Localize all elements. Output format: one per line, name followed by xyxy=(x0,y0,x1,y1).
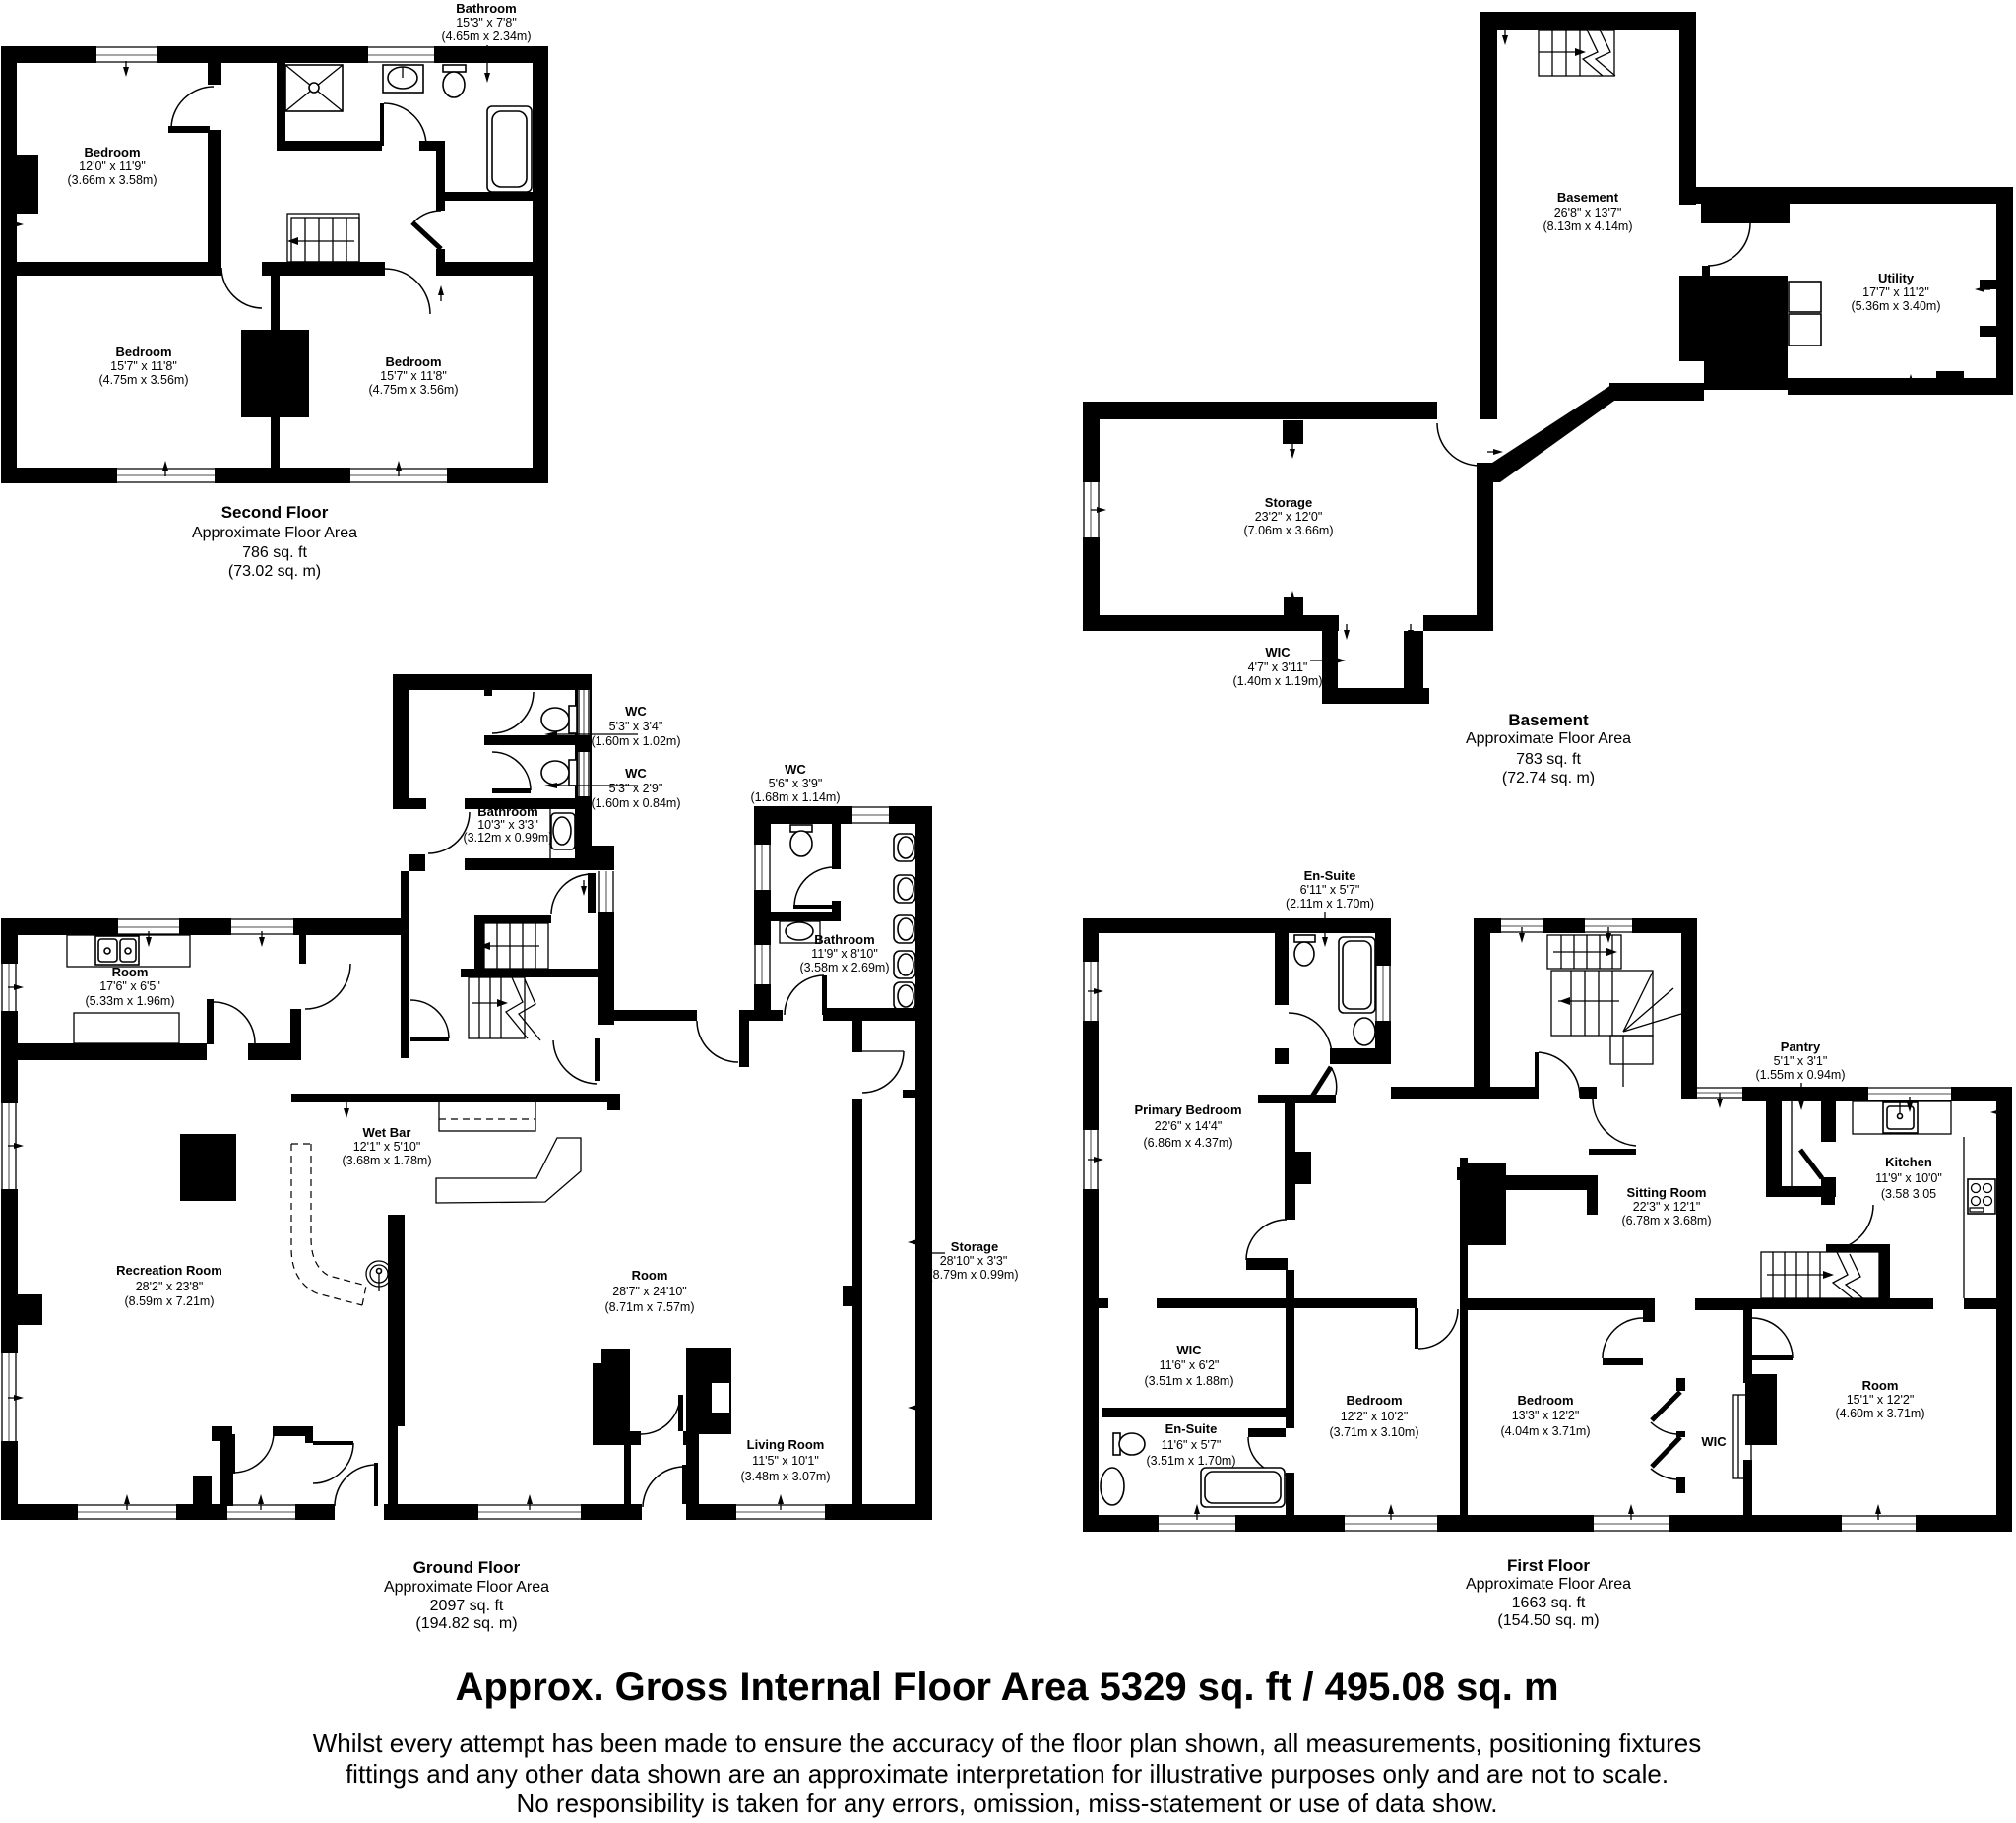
svg-text:(5.36m x 3.40m): (5.36m x 3.40m) xyxy=(1851,299,1940,313)
svg-text:15'7" x 11'8": 15'7" x 11'8" xyxy=(380,369,447,383)
svg-text:(5.33m x 1.96m): (5.33m x 1.96m) xyxy=(85,994,174,1008)
svg-text:5'3" x 3'4": 5'3" x 3'4" xyxy=(609,720,663,733)
svg-text:Room: Room xyxy=(1862,1378,1899,1393)
svg-text:Approximate Floor Area: Approximate Floor Area xyxy=(1466,1576,1631,1593)
svg-text:(73.02 sq. m): (73.02 sq. m) xyxy=(228,563,321,580)
svg-text:Whilst every attempt has been: Whilst every attempt has been made to en… xyxy=(313,1729,1702,1758)
svg-text:23'2" x 12'0": 23'2" x 12'0" xyxy=(1255,510,1323,524)
svg-text:26'8" x 13'7": 26'8" x 13'7" xyxy=(1554,206,1622,220)
svg-text:6'11" x 5'7": 6'11" x 5'7" xyxy=(1300,883,1360,897)
svg-text:11'9" x 10'0": 11'9" x 10'0" xyxy=(1875,1171,1942,1185)
svg-text:WC: WC xyxy=(625,766,647,781)
svg-text:(7.06m x 3.66m): (7.06m x 3.66m) xyxy=(1243,524,1333,537)
svg-text:28'7" x 24'10": 28'7" x 24'10" xyxy=(612,1285,687,1298)
svg-text:En-Suite: En-Suite xyxy=(1165,1421,1218,1436)
svg-text:11'6" x 6'2": 11'6" x 6'2" xyxy=(1160,1358,1220,1372)
svg-text:1663 sq. ft: 1663 sq. ft xyxy=(1512,1595,1586,1611)
svg-text:Second Floor: Second Floor xyxy=(221,503,329,522)
svg-text:(2.11m x 1.70m): (2.11m x 1.70m) xyxy=(1286,897,1374,911)
svg-text:22'3" x 12'1": 22'3" x 12'1" xyxy=(1633,1200,1701,1214)
svg-text:(8.71m x 7.57m): (8.71m x 7.57m) xyxy=(604,1300,694,1314)
svg-text:(1.40m x 1.19m): (1.40m x 1.19m) xyxy=(1232,674,1322,688)
svg-text:11'9" x 8'10": 11'9" x 8'10" xyxy=(811,947,878,961)
svg-text:Pantry: Pantry xyxy=(1781,1039,1821,1054)
svg-text:WC: WC xyxy=(625,704,647,719)
svg-text:Bedroom: Bedroom xyxy=(1517,1393,1573,1408)
svg-text:Primary Bedroom: Primary Bedroom xyxy=(1134,1102,1241,1117)
svg-text:17'7" x 11'2": 17'7" x 11'2" xyxy=(1862,285,1929,299)
svg-text:(3.12m x 0.99m): (3.12m x 0.99m) xyxy=(463,831,552,845)
svg-text:(4.60m x 3.71m): (4.60m x 3.71m) xyxy=(1835,1407,1924,1420)
svg-text:(3.68m x 1.78m): (3.68m x 1.78m) xyxy=(342,1154,431,1167)
svg-text:fittings and any other data sh: fittings and any other data shown are an… xyxy=(346,1759,1669,1789)
svg-text:Sitting Room: Sitting Room xyxy=(1627,1185,1707,1200)
svg-text:(3.71m x 3.10m): (3.71m x 3.10m) xyxy=(1329,1425,1418,1439)
svg-text:(3.58m x 2.69m): (3.58m x 2.69m) xyxy=(799,961,889,974)
svg-text:5'6" x 3'9": 5'6" x 3'9" xyxy=(769,777,823,790)
svg-text:(8.13m x 4.14m): (8.13m x 4.14m) xyxy=(1543,220,1632,233)
svg-text:(72.74 sq. m): (72.74 sq. m) xyxy=(1502,770,1595,786)
svg-text:Bedroom: Bedroom xyxy=(84,145,140,159)
svg-text:15'3" x 7'8": 15'3" x 7'8" xyxy=(456,16,517,30)
svg-text:12'2" x 10'2": 12'2" x 10'2" xyxy=(1341,1410,1409,1423)
svg-text:(3.51m x 1.70m): (3.51m x 1.70m) xyxy=(1146,1454,1235,1468)
svg-text:(3.51m x 1.88m): (3.51m x 1.88m) xyxy=(1144,1374,1233,1388)
svg-text:Utility: Utility xyxy=(1878,271,1915,285)
svg-text:(4.75m x 3.56m): (4.75m x 3.56m) xyxy=(98,373,188,387)
svg-text:12'1" x 5'10": 12'1" x 5'10" xyxy=(353,1140,421,1154)
svg-text:Wet Bar: Wet Bar xyxy=(363,1125,411,1140)
svg-text:17'6" x 6'5": 17'6" x 6'5" xyxy=(99,979,160,993)
svg-text:11'5" x 10'1": 11'5" x 10'1" xyxy=(752,1454,819,1468)
svg-text:4'7" x 3'11": 4'7" x 3'11" xyxy=(1248,660,1308,674)
svg-text:WC: WC xyxy=(785,762,806,777)
svg-text:(8.59m x 7.21m): (8.59m x 7.21m) xyxy=(124,1294,214,1308)
svg-text:22'6" x 14'4": 22'6" x 14'4" xyxy=(1155,1119,1223,1133)
svg-text:783 sq. ft: 783 sq. ft xyxy=(1516,751,1581,768)
svg-text:Basement: Basement xyxy=(1508,711,1589,729)
svg-text:Storage: Storage xyxy=(1265,495,1312,510)
svg-text:12'0" x 11'9": 12'0" x 11'9" xyxy=(79,159,146,173)
svg-text:Approximate Floor Area: Approximate Floor Area xyxy=(384,1579,549,1596)
svg-text:Living Room: Living Room xyxy=(747,1437,825,1452)
svg-text:(3.58 3.05: (3.58 3.05 xyxy=(1881,1187,1936,1201)
svg-text:No responsibility is taken for: No responsibility is taken for any error… xyxy=(516,1789,1497,1818)
svg-text:Bathroom: Bathroom xyxy=(814,932,874,947)
svg-text:15'7" x 11'8": 15'7" x 11'8" xyxy=(110,359,177,373)
svg-text:11'6" x 5'7": 11'6" x 5'7" xyxy=(1162,1438,1222,1452)
svg-text:786 sq. ft: 786 sq. ft xyxy=(242,544,307,561)
svg-text:Storage: Storage xyxy=(951,1239,998,1254)
svg-text:First Floor: First Floor xyxy=(1507,1556,1590,1575)
svg-text:28'10" x 3'3": 28'10" x 3'3" xyxy=(940,1254,1008,1268)
svg-text:Bedroom: Bedroom xyxy=(115,345,171,359)
svg-text:(1.68m x 1.14m): (1.68m x 1.14m) xyxy=(750,790,840,804)
svg-text:2097 sq. ft: 2097 sq. ft xyxy=(430,1598,504,1614)
svg-text:Bathroom: Bathroom xyxy=(477,804,537,819)
svg-text:(1.60m x 1.02m): (1.60m x 1.02m) xyxy=(591,734,680,748)
svg-text:Approximate Floor Area: Approximate Floor Area xyxy=(1466,730,1631,747)
svg-text:Room: Room xyxy=(632,1268,668,1283)
svg-text:(6.86m x 4.37m): (6.86m x 4.37m) xyxy=(1143,1136,1232,1150)
svg-text:5'3" x 2'9": 5'3" x 2'9" xyxy=(609,782,663,795)
svg-text:En-Suite: En-Suite xyxy=(1304,868,1356,883)
svg-text:(3.66m x 3.58m): (3.66m x 3.58m) xyxy=(67,173,157,187)
svg-text:5'1" x 3'1": 5'1" x 3'1" xyxy=(1774,1054,1828,1068)
svg-text:WIC: WIC xyxy=(1176,1343,1202,1357)
svg-text:Bedroom: Bedroom xyxy=(1346,1393,1402,1408)
svg-text:(154.50 sq. m): (154.50 sq. m) xyxy=(1497,1612,1599,1629)
svg-text:Room: Room xyxy=(112,965,149,979)
svg-text:10'3" x 3'3": 10'3" x 3'3" xyxy=(477,818,538,832)
svg-text:Bedroom: Bedroom xyxy=(385,354,441,369)
svg-text:(1.60m x 0.84m): (1.60m x 0.84m) xyxy=(591,796,680,810)
svg-text:Recreation Room: Recreation Room xyxy=(116,1263,222,1278)
svg-text:Kitchen: Kitchen xyxy=(1885,1155,1932,1169)
svg-text:(4.75m x 3.56m): (4.75m x 3.56m) xyxy=(368,383,458,397)
svg-text:Basement: Basement xyxy=(1557,190,1619,205)
svg-text:13'3" x 12'2": 13'3" x 12'2" xyxy=(1512,1409,1580,1422)
svg-text:28'2" x 23'8": 28'2" x 23'8" xyxy=(136,1280,204,1293)
svg-text:15'1" x 12'2": 15'1" x 12'2" xyxy=(1847,1393,1915,1407)
svg-text:(3.48m x 3.07m): (3.48m x 3.07m) xyxy=(740,1470,830,1483)
svg-text:WIC: WIC xyxy=(1265,645,1291,660)
svg-text:WIC: WIC xyxy=(1701,1434,1727,1449)
svg-text:Ground Floor: Ground Floor xyxy=(413,1558,521,1577)
svg-text:Approx. Gross Internal Floor A: Approx. Gross Internal Floor Area 5329 s… xyxy=(455,1666,1558,1709)
svg-text:(6.78m x 3.68m): (6.78m x 3.68m) xyxy=(1621,1214,1711,1227)
svg-text:(8.79m x 0.99m): (8.79m x 0.99m) xyxy=(928,1268,1018,1282)
svg-text:(1.55m x 0.94m): (1.55m x 0.94m) xyxy=(1755,1068,1845,1082)
svg-text:Bathroom: Bathroom xyxy=(456,1,516,16)
svg-text:(4.65m x 2.34m): (4.65m x 2.34m) xyxy=(441,30,531,43)
svg-text:(4.04m x 3.71m): (4.04m x 3.71m) xyxy=(1500,1424,1590,1438)
svg-text:Approximate Floor Area: Approximate Floor Area xyxy=(192,525,357,541)
svg-text:(194.82 sq. m): (194.82 sq. m) xyxy=(415,1615,517,1632)
